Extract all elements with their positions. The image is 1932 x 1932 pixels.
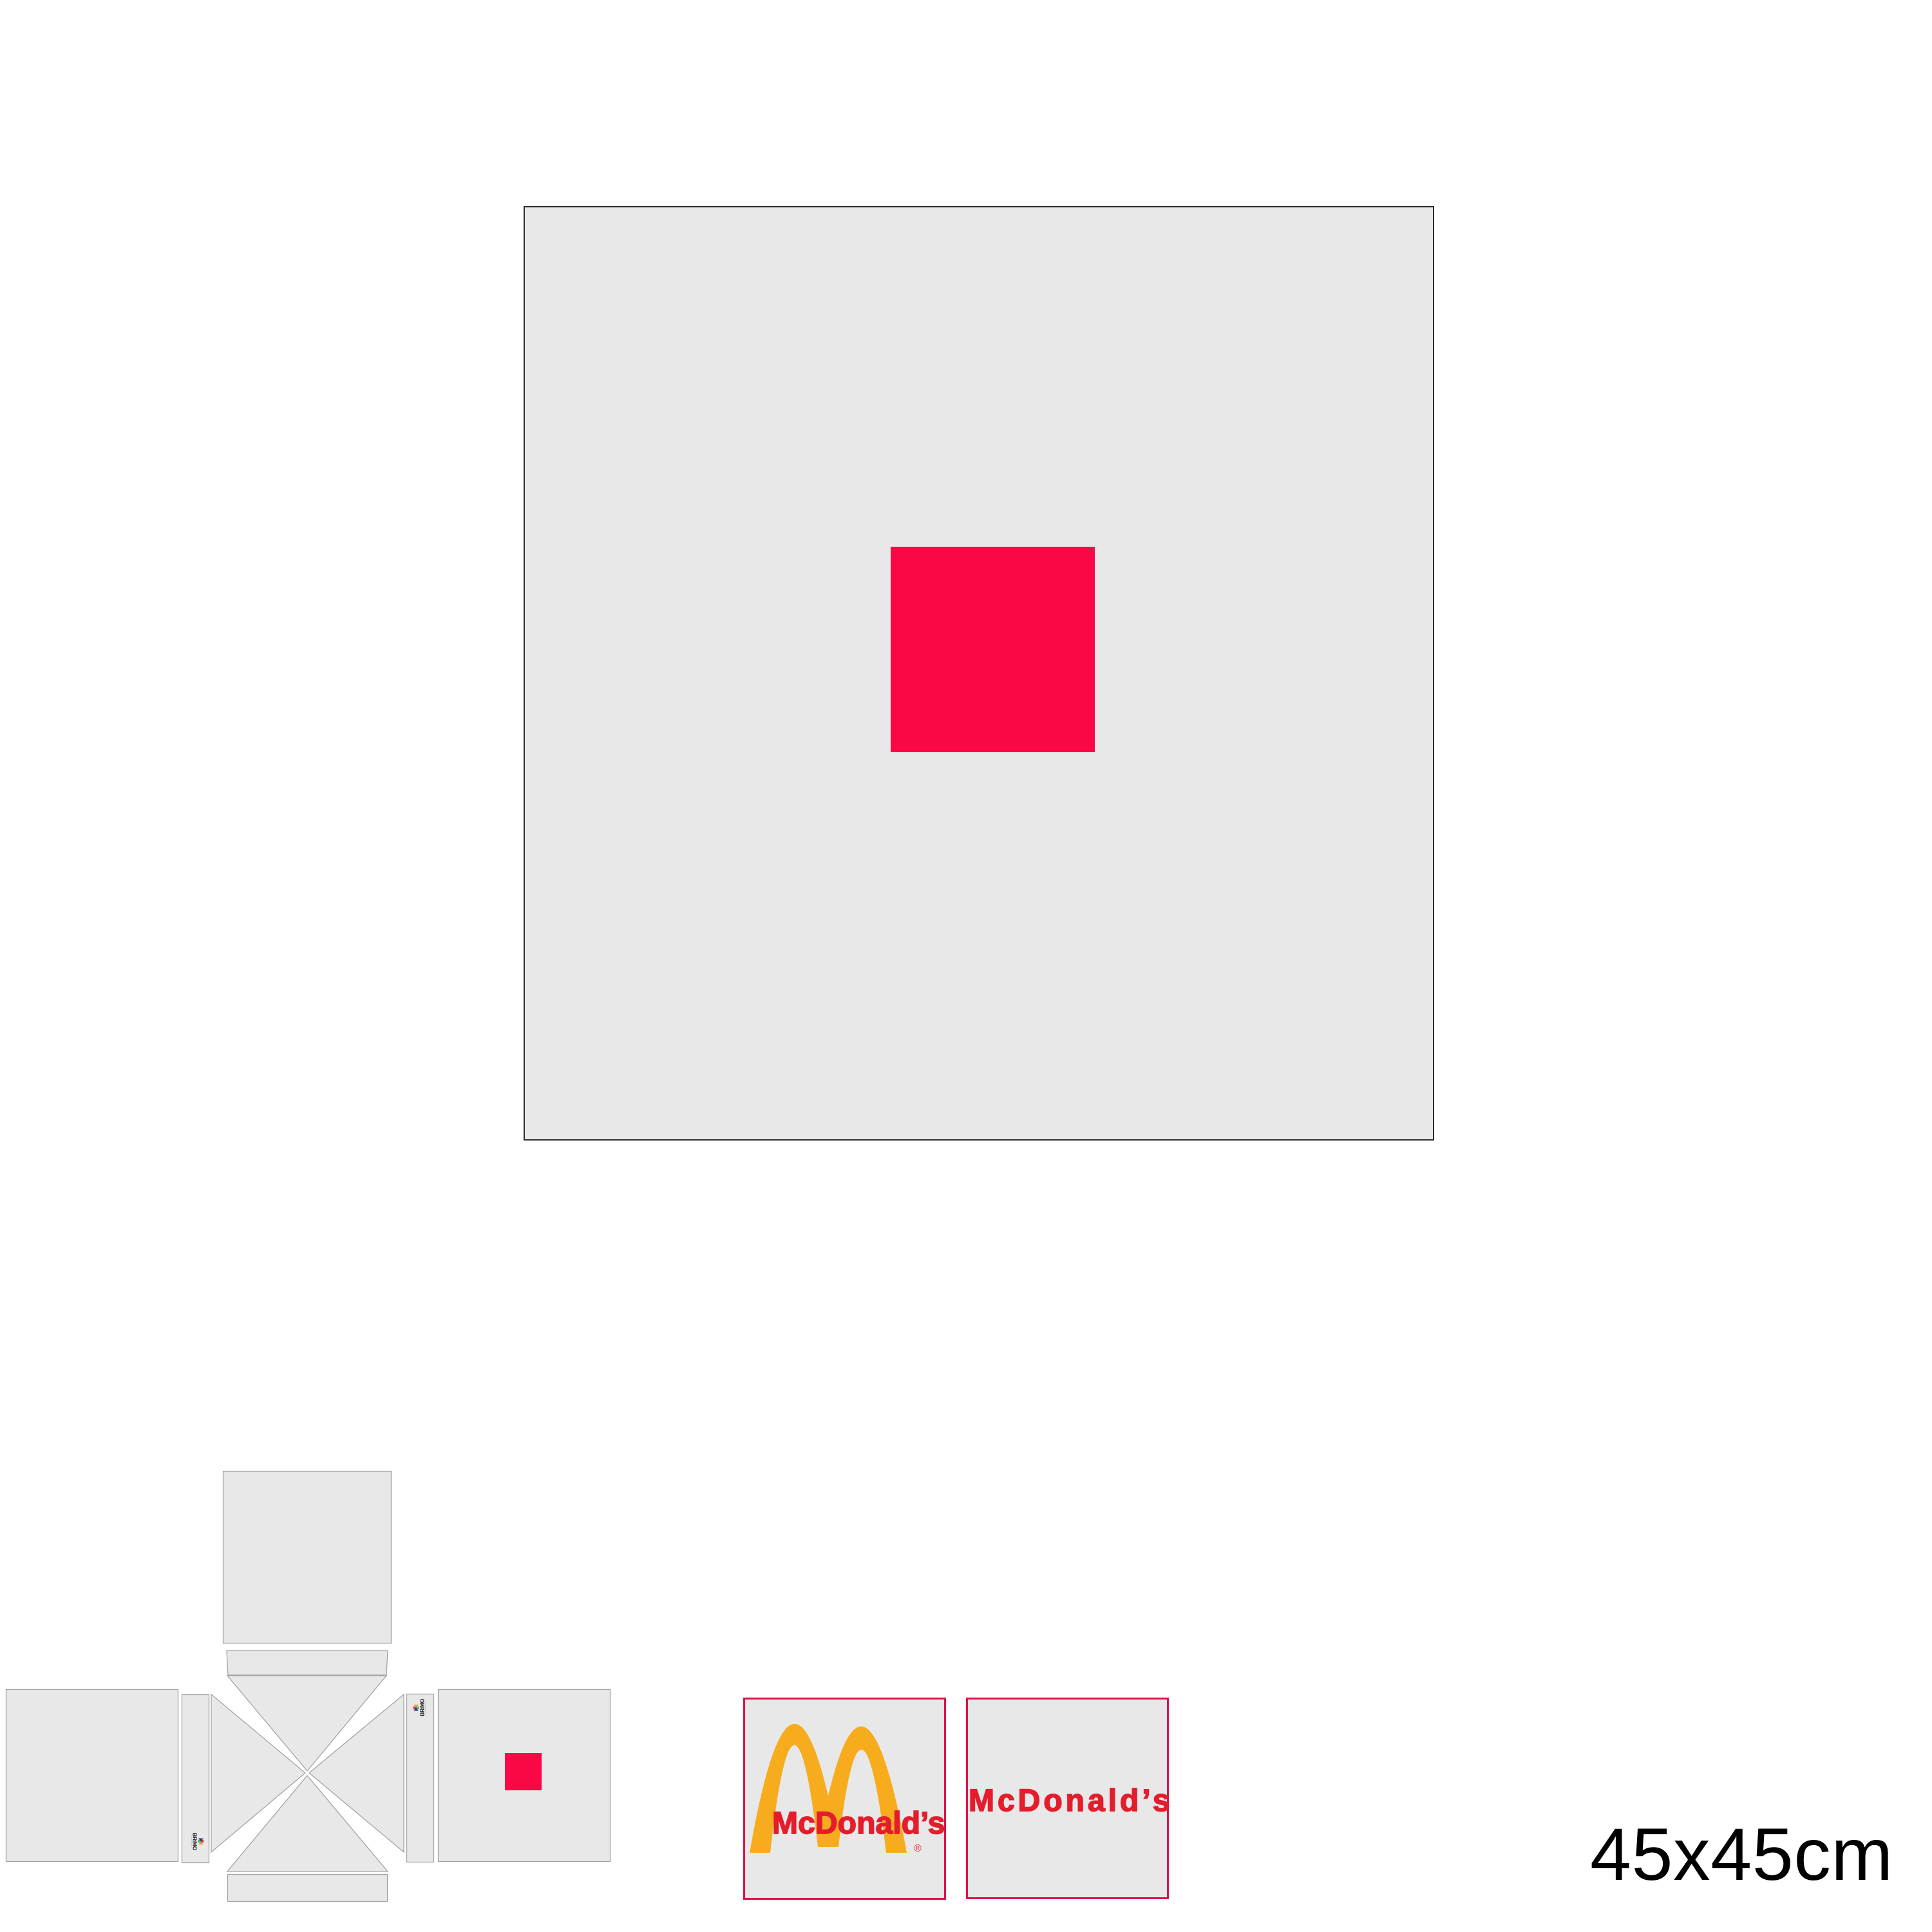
svg-text:BRiMO: BRiMO xyxy=(419,1698,425,1716)
svg-text:BRiMO: BRiMO xyxy=(192,1833,198,1851)
